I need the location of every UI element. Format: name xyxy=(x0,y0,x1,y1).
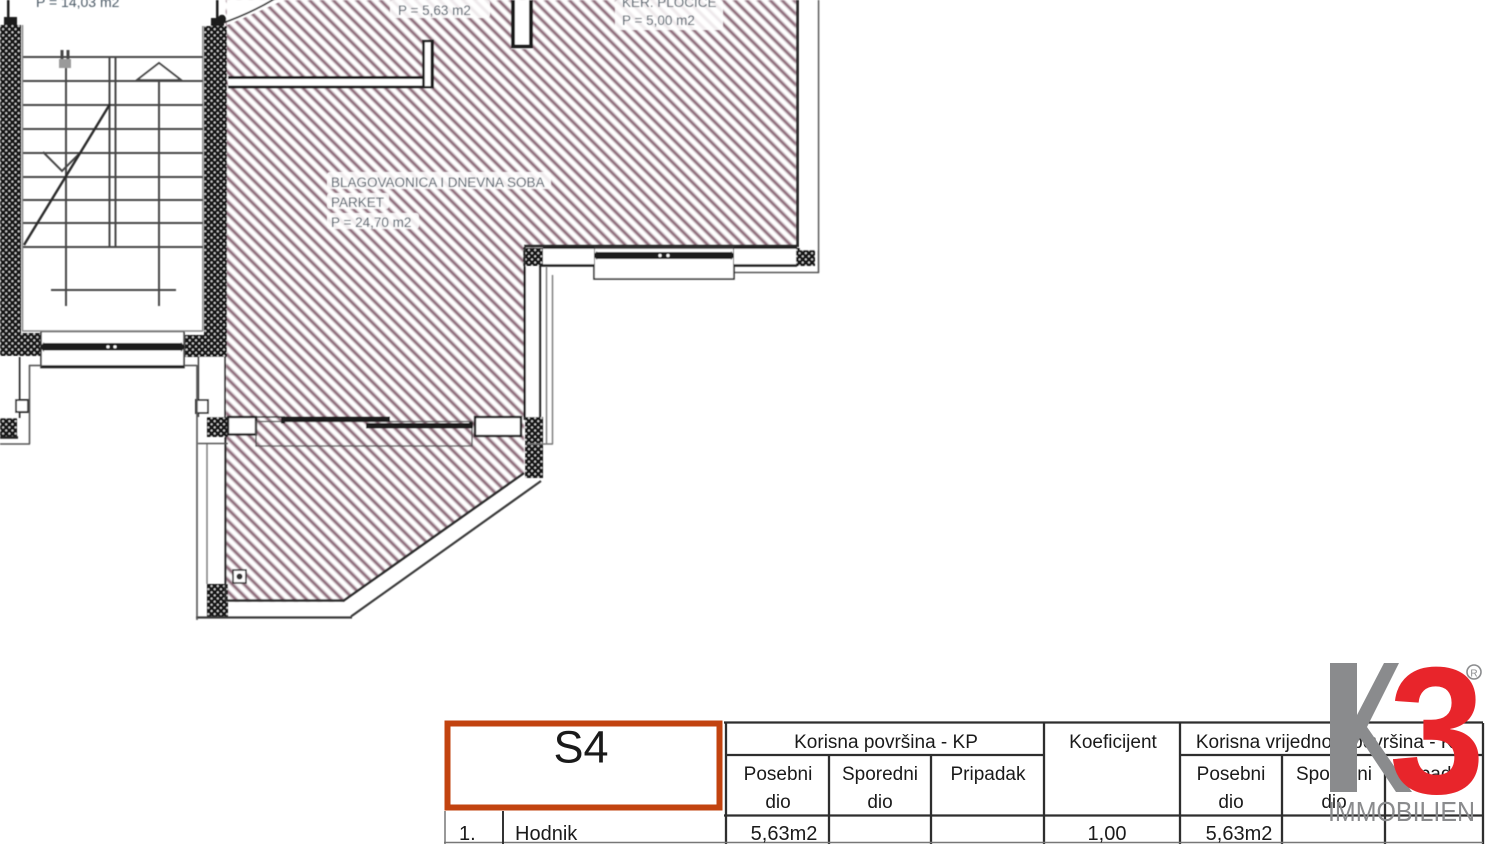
svg-text:dio: dio xyxy=(867,792,892,813)
svg-text:Hodnik: Hodnik xyxy=(515,823,578,844)
svg-text:Pripadak: Pripadak xyxy=(951,764,1026,785)
svg-text:P = 5,63 m2: P = 5,63 m2 xyxy=(398,3,471,18)
svg-text:P = 14,03 m2: P = 14,03 m2 xyxy=(36,0,120,10)
svg-text:KER. PLOČICE: KER. PLOČICE xyxy=(622,0,717,10)
svg-text:Posebni: Posebni xyxy=(744,764,813,785)
svg-text:BLAGOVAONICA I DNEVNA SOBA: BLAGOVAONICA I DNEVNA SOBA xyxy=(331,175,545,190)
svg-text:dio: dio xyxy=(765,792,790,813)
svg-text:dio: dio xyxy=(1218,792,1243,813)
svg-text:S4: S4 xyxy=(553,722,608,773)
svg-text:1.: 1. xyxy=(459,823,476,844)
svg-text:P = 5,00 m2: P = 5,00 m2 xyxy=(622,13,695,28)
svg-text:1,00: 1,00 xyxy=(1088,823,1127,844)
svg-text:5,63m2: 5,63m2 xyxy=(1206,823,1273,844)
svg-text:5,63m2: 5,63m2 xyxy=(751,823,818,844)
svg-text:Koeficijent: Koeficijent xyxy=(1069,732,1157,753)
svg-text:Korisna površina - KP: Korisna površina - KP xyxy=(794,732,978,753)
svg-text:Sporedni: Sporedni xyxy=(842,764,918,785)
svg-text:P = 24,70 m2: P = 24,70 m2 xyxy=(331,215,411,230)
svg-text:IMMOBILIEN: IMMOBILIEN xyxy=(1328,796,1475,827)
svg-text:PARKET: PARKET xyxy=(331,195,384,210)
svg-text:R: R xyxy=(1470,669,1477,680)
svg-text:Posebni: Posebni xyxy=(1197,764,1266,785)
